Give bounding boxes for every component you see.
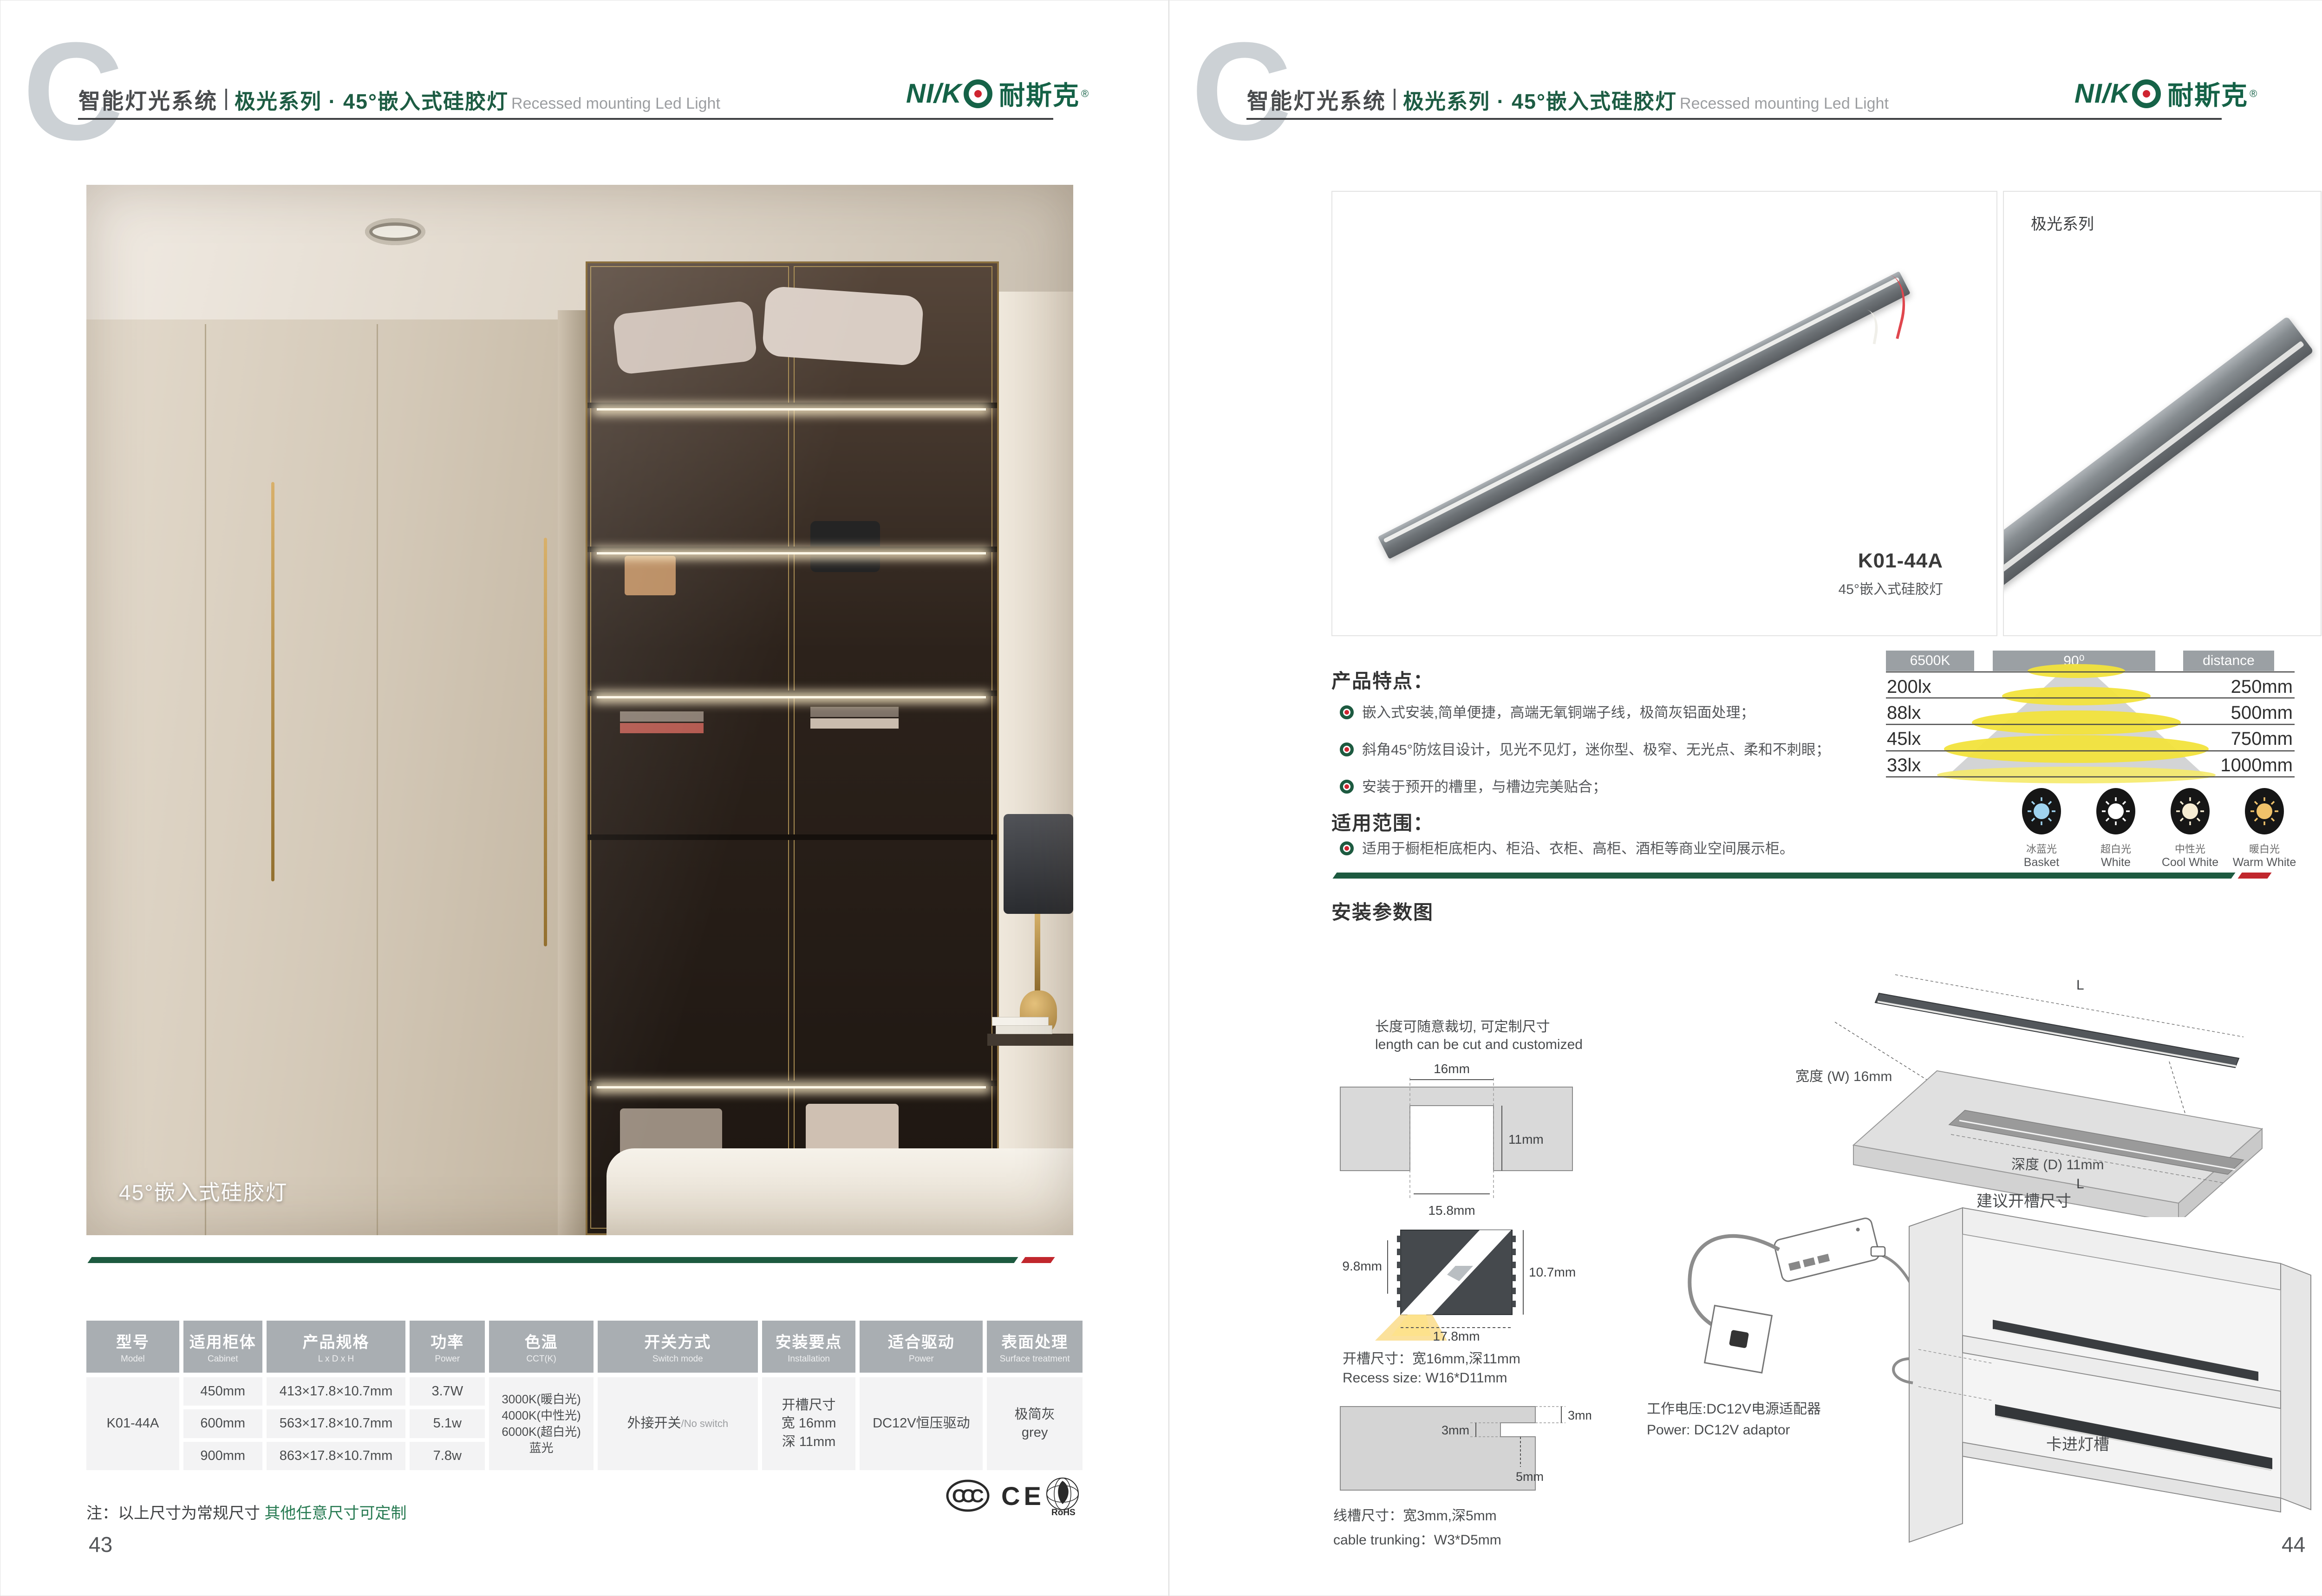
light-pool: [1944, 735, 2209, 763]
install-title: 安装参数图: [1331, 897, 1434, 925]
photo-gold-handle: [271, 482, 274, 881]
col-header-cn: 色温: [525, 1329, 558, 1352]
plug: [1729, 1330, 1749, 1348]
scope-item: 适用于橱柜柜底柜内、柜沿、衣柜、高柜、酒柜等商业空间展示柜。: [1331, 839, 1949, 859]
photo-corner-column: [558, 310, 586, 1235]
groove-depth-label: 11mm: [1508, 1132, 1544, 1147]
logo-chinese-text: 耐斯克: [2167, 75, 2248, 112]
page-number-right: 44: [2282, 1532, 2305, 1557]
trunk-top-label: 3mm: [1568, 1408, 1591, 1422]
cell-cct-line: 蓝光: [529, 1440, 554, 1456]
target-bullet-icon: [1340, 780, 1354, 794]
col-header-cn: 适用柜体: [189, 1329, 256, 1352]
power-spec-cn: 工作电压:DC12V电源适配器: [1647, 1397, 1821, 1418]
col-header-cn: 安装要点: [776, 1329, 842, 1352]
feature-item: 安装于预开的槽里，与槽边完美贴合；: [1331, 777, 1949, 797]
cell-cct-line: 6000K(超白光): [502, 1424, 581, 1440]
lifestyle-photo: 45°嵌入式硅胶灯: [86, 185, 1073, 1235]
svg-text:RoHS: RoHS: [1051, 1508, 1076, 1518]
profile-diagram: 9.8mm 10.7mm 17.8mm: [1331, 1222, 1582, 1342]
cabinet-right-panel: [2281, 1264, 2311, 1510]
swatch-warm-white-icon: [2245, 788, 2284, 834]
header-subtitle-en: Recessed mounting Led Light: [1680, 95, 1889, 113]
brand-logo: NI/K 耐斯克 ®: [2074, 75, 2257, 112]
profile-right-height-label: 10.7mm: [1529, 1265, 1576, 1279]
table-col-cabinet: 适用柜体Cabinet 450mm 600mm 900mm: [183, 1321, 262, 1470]
header-divider: [225, 89, 227, 110]
logo-target-icon: [964, 79, 992, 108]
photo-door-seam: [377, 324, 378, 1235]
table-col-installation: 安装要点Installation 开槽尺寸 宽 16mm 深 11mm: [762, 1321, 856, 1470]
swatch-ice-blue-icon: [2022, 788, 2061, 834]
cell-driver: DC12V恒压驱动: [860, 1377, 983, 1470]
feature-text: 安装于预开的槽里，与槽边完美贴合；: [1362, 777, 1607, 797]
scope-title: 适用范围：: [1331, 808, 1434, 836]
col-header-en: Switch mode: [652, 1354, 703, 1364]
header-system-title: 智能灯光系统: [78, 83, 218, 115]
cell-cct-line: 4000K(中性光): [502, 1407, 581, 1424]
cell-model: K01-44A: [86, 1377, 179, 1470]
photo-bed: [607, 1148, 1073, 1235]
header-subtitle-en: Recessed mounting Led Light: [511, 95, 720, 113]
photo-lamp-shade: [1004, 814, 1073, 914]
photo-right-wall: [999, 292, 1073, 1235]
logo-chinese-text: 耐斯克: [999, 75, 1080, 112]
table-col-driver: 适合驱动Power DC12V恒压驱动: [860, 1321, 983, 1470]
photo-gold-handle: [544, 538, 547, 946]
cell-cct-line: 3000K(暖白光): [502, 1391, 581, 1407]
distance-value: 500mm: [2192, 703, 2293, 723]
product-name: 45°嵌入式硅胶灯: [1839, 578, 1943, 598]
divider-red-bar: [2237, 873, 2271, 879]
cell-cabinet: 900mm: [183, 1442, 262, 1470]
col-header-cn: 产品规格: [303, 1329, 370, 1352]
header-rule-right: [1246, 118, 2222, 120]
cell-power: 3.7W: [410, 1377, 485, 1406]
col-header-en: Cabinet: [208, 1354, 238, 1364]
rohs-mark-icon: RoHS: [1047, 1478, 1078, 1518]
cell-install-line: 开槽尺寸: [782, 1396, 836, 1414]
col-header-cn: 开关方式: [644, 1329, 711, 1352]
cut-note-cn: 长度可随意裁切, 可定制尺寸: [1375, 1015, 1550, 1036]
table-col-model: 型号Model K01-44A: [86, 1321, 179, 1470]
footnote-text: 注：以上尺寸为常规尺寸: [86, 1505, 264, 1522]
recess-size-cn: 开槽尺寸：宽16mm,深11mm: [1343, 1347, 1520, 1368]
cell-surface-cn: 极简灰: [1015, 1406, 1055, 1424]
photo-caption: 45°嵌入式硅胶灯: [119, 1176, 288, 1206]
distance-value: 1000mm: [2192, 755, 2293, 776]
cell-spec: 863×17.8×10.7mm: [267, 1442, 406, 1470]
light-pool: [2028, 664, 2125, 678]
feature-item: 斜角45°防炫目设计，见光不见灯，迷你型、极窄、无光点、柔和不刺眼；: [1331, 740, 1949, 760]
cell-install-line: 深 11mm: [782, 1433, 835, 1451]
page-header-left: 智能灯光系统 极光系列 · 45°嵌入式硅胶灯 Recessed mountin…: [78, 83, 720, 115]
cabinet-install-diagram: [1877, 1182, 2322, 1549]
cct-swatches: [1997, 784, 2322, 840]
trunk-bottom-label: 5mm: [1516, 1470, 1544, 1484]
recess-size-en: Recess size: W16*D11mm: [1343, 1370, 1507, 1386]
clip-into-groove-label: 卡进灯槽: [2046, 1432, 2109, 1454]
col-header-cn: 功率: [430, 1329, 464, 1352]
bar-length-label: L: [2076, 977, 2084, 993]
feature-text: 斜角45°防炫目设计，见光不见灯，迷你型、极窄、无光点、柔和不刺眼；: [1362, 740, 1830, 760]
distance-value: 250mm: [2192, 677, 2293, 697]
photo-book: [996, 1025, 1052, 1034]
product-model: K01-44A: [1858, 549, 1943, 573]
divider-green-bar: [87, 1257, 1018, 1263]
board-width-label: 宽度 (W) 16mm: [1795, 1065, 1892, 1085]
profile-left-height-label: 9.8mm: [1342, 1259, 1382, 1273]
photo-glass-cabinet: [586, 261, 999, 1235]
ce-mark-icon: CE: [1001, 1481, 1045, 1511]
target-bullet-icon: [1340, 841, 1354, 855]
trunk-size-cn: 线槽尺寸：宽3mm,深5mm: [1333, 1504, 1497, 1524]
cabinet-glass-sheen: [587, 263, 997, 1233]
profile-width-label: 17.8mm: [1433, 1329, 1480, 1342]
light-pool: [1937, 767, 2216, 783]
cell-switch-en: /No switch: [681, 1417, 728, 1431]
photo-book: [992, 1017, 1049, 1026]
lux-value: 45lx: [1887, 729, 1921, 749]
col-header-cn: 型号: [116, 1329, 150, 1352]
photo-door-seam: [205, 324, 206, 1235]
footnote: 注：以上尺寸为常规尺寸 其他任意尺寸可定制: [86, 1500, 406, 1523]
groove-inner-width-label: 15.8mm: [1428, 1203, 1475, 1218]
page-gutter-line: [1168, 0, 1169, 1596]
divider-green-bar: [1332, 873, 2235, 879]
col-header-en: Installation: [788, 1354, 830, 1364]
lux-value: 200lx: [1887, 677, 1931, 697]
cut-note-en: length can be cut and customized: [1375, 1037, 1583, 1053]
profile-piece-image: [2003, 316, 2314, 603]
swatch-label-en: Cool White: [2153, 856, 2227, 869]
feature-text: 嵌入式安装,简单便捷，高端无氧铜端子线，极简灰铝面处理；: [1362, 703, 1755, 723]
table-col-switch: 开关方式Switch mode 外接开关 /No switch: [598, 1321, 758, 1470]
swatch-label-en: Warm White: [2227, 856, 2302, 869]
swatch-label-en: Basket: [2004, 856, 2079, 869]
catalog-spread: C 智能灯光系统 极光系列 · 45°嵌入式硅胶灯 Recessed mount…: [0, 0, 2322, 1596]
target-bullet-icon: [1340, 705, 1354, 719]
certification-icons: CCC CE RoHS: [946, 1476, 1085, 1523]
spec-table: 型号Model K01-44A 适用柜体Cabinet 450mm 600mm …: [86, 1321, 1083, 1470]
swatch-label-en: White: [2079, 856, 2153, 869]
brand-logo: NI/K 耐斯克 ®: [906, 75, 1089, 112]
col-header-cn: 表面处理: [1001, 1329, 1068, 1352]
col-header-en: L x D x H: [318, 1354, 354, 1364]
board-depth-label: 深度 (D) 11mm: [2011, 1153, 2104, 1173]
trunk-side-label: 3mm: [1441, 1423, 1469, 1437]
product-photo-profile: 极光系列: [2003, 191, 2322, 636]
feature-item: 嵌入式安装,简单便捷，高端无氧铜端子线，极简灰铝面处理；: [1331, 703, 1949, 723]
lux-value: 33lx: [1887, 755, 1921, 776]
target-bullet-icon: [1340, 743, 1354, 756]
cabinet-left-panel: [1909, 1208, 1963, 1542]
cell-install-line: 宽 16mm: [782, 1414, 836, 1433]
cell-spec: 413×17.8×10.7mm: [267, 1377, 406, 1406]
light-pool: [1972, 710, 2181, 735]
cell-spec: 563×17.8×10.7mm: [267, 1409, 406, 1438]
page-header-right: 智能灯光系统 极光系列 · 45°嵌入式硅胶灯 Recessed mountin…: [1247, 83, 1889, 115]
trunk-size-en: cable trunking：W3*D5mm: [1333, 1528, 1501, 1549]
table-col-power: 功率Power 3.7W 5.1w 7.8w: [410, 1321, 485, 1470]
swatch-white-icon: [2096, 788, 2135, 834]
col-header-cn: 适合驱动: [888, 1329, 955, 1352]
scope-text: 适用于橱柜柜底柜内、柜沿、衣柜、高柜、酒柜等商业空间展示柜。: [1362, 839, 1794, 859]
col-header-en: Surface treatment: [1000, 1354, 1070, 1364]
header-rule-left: [78, 118, 1053, 120]
groove-diagram: 16mm 11mm 15.8mm: [1331, 1059, 1582, 1226]
logo-registered-mark: ®: [1081, 88, 1089, 100]
photo-wardrobe-doors: [86, 319, 558, 1235]
logo-latin-text: NI/K: [906, 78, 962, 109]
board-groove-diagram: L L: [1835, 957, 2322, 1217]
cell-surface-en: grey: [1022, 1424, 1048, 1442]
cell-power: 5.1w: [410, 1409, 485, 1438]
trunking-diagram: 3mm 3mm 5mm: [1331, 1397, 1591, 1495]
photo-downlight: [365, 218, 425, 245]
power-adapter-body: [1773, 1217, 1880, 1283]
swatch-label-cn: 暖白光: [2227, 841, 2302, 856]
table-col-surface: 表面处理Surface treatment 极简灰 grey: [987, 1321, 1083, 1470]
photo-nightstand: [987, 1034, 1073, 1046]
col-header-en: Model: [121, 1354, 145, 1364]
table-col-cct: 色温CCT(K) 3000K(暖白光) 4000K(中性光) 6000K(超白光…: [489, 1321, 594, 1470]
features-title: 产品特点：: [1331, 665, 1434, 694]
swatch-label-cn: 中性光: [2153, 841, 2227, 856]
series-label: 极光系列: [2031, 211, 2094, 234]
cell-power: 7.8w: [410, 1442, 485, 1470]
product-photo-main: K01-44A 45°嵌入式硅胶灯: [1331, 191, 1997, 636]
swatch-label-cn: 超白光: [2079, 841, 2153, 856]
groove-width-label: 16mm: [1434, 1062, 1470, 1076]
header-divider: [1394, 89, 1396, 110]
logo-latin-text: NI/K: [2074, 78, 2130, 109]
power-spec-en: Power: DC12V adaptor: [1647, 1422, 1790, 1438]
footnote-highlight: 其他任意尺寸可定制: [264, 1505, 406, 1522]
led-bar-image: [1378, 271, 1911, 559]
col-header-en: Power: [909, 1354, 934, 1364]
page-number-left: 43: [89, 1532, 112, 1557]
col-header-en: CCT(K): [526, 1354, 556, 1364]
ccc-mark-icon: CCC: [952, 1486, 984, 1506]
lux-value: 88lx: [1887, 703, 1921, 723]
light-pool: [2002, 687, 2151, 705]
cell-switch-cn: 外接开关: [627, 1414, 681, 1433]
header-series-title: 极光系列 · 45°嵌入式硅胶灯: [1403, 85, 1677, 115]
col-header-en: Power: [435, 1354, 460, 1364]
logo-target-icon: [2132, 79, 2161, 108]
table-col-spec: 产品规格L x D x H 413×17.8×10.7mm 563×17.8×1…: [267, 1321, 406, 1470]
swatch-cool-white-icon: [2171, 788, 2210, 834]
header-system-title: 智能灯光系统: [1247, 83, 1386, 115]
header-series-title: 极光系列 · 45°嵌入式硅胶灯: [235, 85, 509, 115]
logo-registered-mark: ®: [2250, 88, 2257, 100]
cell-cabinet: 450mm: [183, 1377, 262, 1406]
cell-cabinet: 600mm: [183, 1409, 262, 1438]
photo-lamp-stem: [1035, 914, 1040, 993]
divider-red-bar: [1021, 1257, 1055, 1263]
swatch-label-cn: 冰蓝光: [2004, 841, 2079, 856]
distance-value: 750mm: [2192, 729, 2293, 749]
